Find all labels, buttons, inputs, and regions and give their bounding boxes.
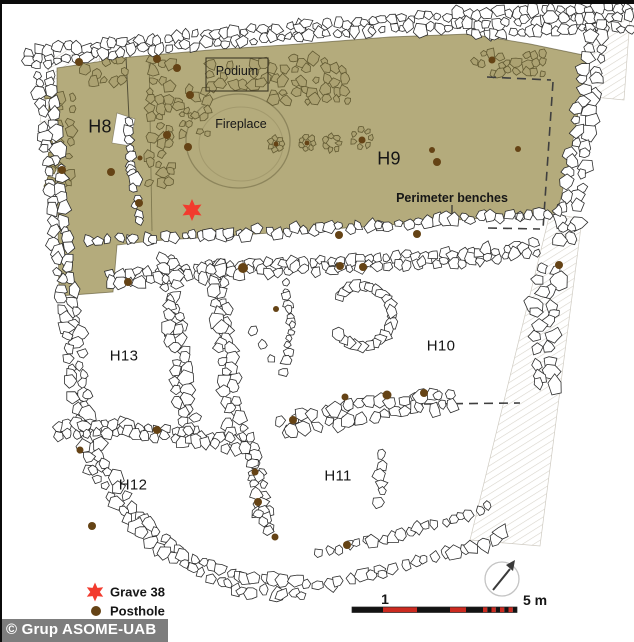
room-label-h10: H10 [427,338,455,355]
scale-tick-label: 1 [381,591,389,607]
legend-label-posthole: Posthole [110,604,165,619]
room-label-h9: H9 [377,149,401,170]
room-label-h12: H12 [119,477,147,494]
legend-grave-star-icon [87,583,103,602]
legend-label-grave: Grave 38 [110,585,165,600]
excavation-plan-drawing [0,0,634,642]
feature-label-fireplace: Fireplace [215,117,266,131]
frame-edge-top [0,0,634,4]
copyright-watermark: © Grup ASOME-UAB [0,619,168,642]
site-plan-figure: H8 H9 H10 H11 H12 H13 Podium Fireplace P… [0,0,634,642]
room-label-h13: H13 [110,348,138,365]
scale-end-label: 5 m [523,592,547,608]
feature-label-perimeter-benches: Perimeter benches [396,191,508,205]
legend-posthole-dot-icon [91,606,101,616]
room-label-h8: H8 [88,117,112,138]
room-label-h11: H11 [324,468,351,485]
feature-label-podium: Podium [216,64,258,78]
frame-edge-left [0,0,2,642]
